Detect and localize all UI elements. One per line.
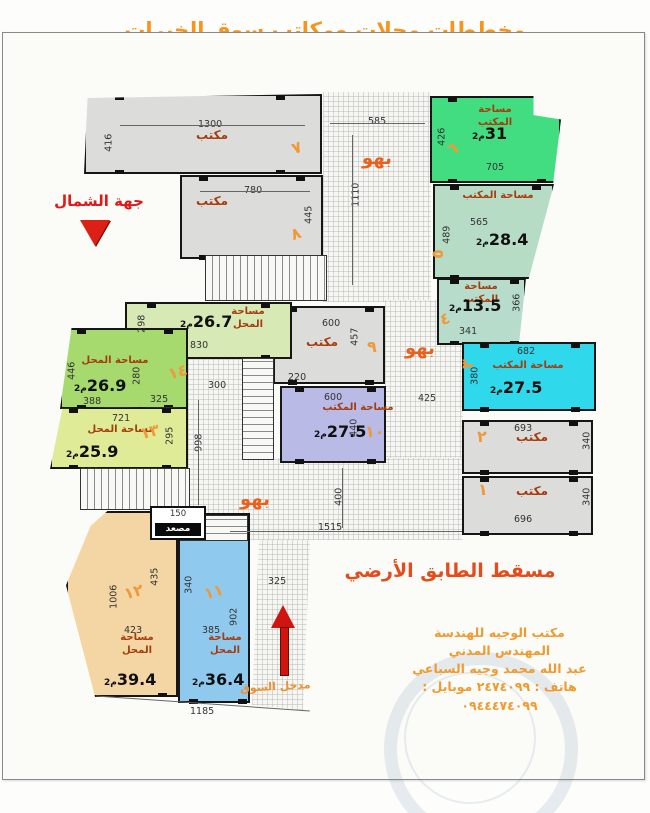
elevator-dim: 150 <box>152 509 204 519</box>
room-area-value: 28.4م2 <box>476 232 528 248</box>
dim-line <box>120 125 305 126</box>
dimension-label: 721 <box>112 414 130 424</box>
dim-line <box>198 400 199 505</box>
room-number: ٥ <box>430 249 446 259</box>
room-label: مساحة المكتب <box>462 190 534 203</box>
dimension-label: 295 <box>165 427 175 445</box>
dimension-label: 489 <box>442 226 452 244</box>
dimension-label: 280 <box>132 367 142 385</box>
dimension-label: 445 <box>304 206 314 224</box>
wall-column <box>365 380 374 385</box>
room-label: مكتب <box>196 194 228 209</box>
wall-column <box>276 95 285 100</box>
area-number: 13.5 <box>462 296 501 315</box>
dimension-label: 425 <box>418 394 436 404</box>
wall-column <box>77 329 86 334</box>
wall-column <box>199 176 208 181</box>
room-number: ٩ <box>367 339 377 355</box>
dimension-label: 385 <box>202 626 220 636</box>
wall-column <box>147 303 156 308</box>
office-info-line: عبد الله محمد وجيه السباعي <box>382 660 617 678</box>
area-unit: م2 <box>314 430 327 440</box>
dimension-label: 388 <box>83 397 101 407</box>
area-number: 26.9 <box>87 376 126 395</box>
dimension-label: 340 <box>582 432 592 450</box>
entrance-arrow-icon <box>271 605 295 628</box>
room-label: مكتب <box>306 335 338 350</box>
entrance-arrow-shaft <box>280 627 289 676</box>
dimension-label: 830 <box>190 341 208 351</box>
dimension-label: 585 <box>368 117 386 127</box>
dim-line <box>352 135 353 285</box>
staircase-bottom <box>80 468 190 510</box>
wall-column <box>367 459 376 464</box>
room-number: ٢ <box>477 429 487 445</box>
room-label: مساحة المكتب <box>488 360 568 373</box>
area-unit: م2 <box>104 678 117 688</box>
room-label: مكتب <box>196 128 228 143</box>
hall-label: بهو <box>362 148 392 169</box>
wall-column <box>480 470 489 475</box>
wall-column <box>367 387 376 392</box>
office-info-line: هاتف : ٢٤٧٤٠٩٩ موبايل : ٠٩٤٤٤٧٤٠٩٩ <box>382 678 617 714</box>
area-number: 31 <box>485 124 507 143</box>
area-number: 26.7 <box>193 312 232 331</box>
wall-column <box>162 408 171 413</box>
room-number: ١٠ <box>365 424 385 440</box>
wall-column <box>164 329 173 334</box>
dim-line <box>200 191 310 192</box>
dimension-label: 440 <box>349 419 359 437</box>
dimension-label: 682 <box>517 347 535 357</box>
area-number: 36.4 <box>205 670 244 689</box>
dimension-label: 565 <box>470 218 488 228</box>
room-area-value: 26.9م2 <box>74 378 126 394</box>
wall-column <box>480 407 489 412</box>
wall-column <box>571 343 580 348</box>
area-unit: م2 <box>66 450 79 460</box>
north-label: جهة الشمال <box>44 192 154 210</box>
area-unit: م2 <box>490 386 503 396</box>
staircase-middle <box>242 358 274 460</box>
wall-column <box>569 477 578 482</box>
wall-column <box>480 531 489 536</box>
wall-column <box>569 470 578 475</box>
dimension-label: 325 <box>268 577 286 587</box>
dimension-label: 705 <box>486 163 504 173</box>
dimension-label: 423 <box>124 626 142 636</box>
staircase-top <box>205 255 327 301</box>
room-area-value: 36.4م2 <box>192 672 244 688</box>
dimension-label: 693 <box>514 424 532 434</box>
elevator: 150 مصعد <box>150 506 206 540</box>
dimension-label: 340 <box>582 488 592 506</box>
room-area-value: 39.4م2 <box>104 672 156 688</box>
dimension-label: 902 <box>229 608 239 626</box>
dimension-label: 600 <box>324 393 342 403</box>
dimension-label: 380 <box>470 367 480 385</box>
area-number: 25.9 <box>79 442 118 461</box>
wall-column <box>448 97 457 102</box>
dimension-label: 426 <box>437 128 447 146</box>
area-unit: م2 <box>449 304 462 314</box>
room-area-value: 13.5م2 <box>449 298 501 314</box>
area-number: 28.4 <box>489 230 528 249</box>
area-number: 39.4 <box>117 670 156 689</box>
dimension-label: 220 <box>288 373 306 383</box>
dimension-label: 341 <box>459 327 477 337</box>
dimension-label: 446 <box>67 362 77 380</box>
dimension-label: 600 <box>322 319 340 329</box>
dimension-label: 325 <box>150 395 168 405</box>
area-unit: م2 <box>74 384 87 394</box>
wall-column <box>480 421 489 426</box>
wall-column <box>571 407 580 412</box>
dimension-label: 416 <box>104 134 114 152</box>
elevator-label: مصعد <box>155 523 201 536</box>
room-area-value: 27.5م2 <box>490 380 542 396</box>
office-info-line: مكتب الوجيه للهندسة <box>382 624 617 642</box>
room-label: مساحة المحل <box>76 355 154 368</box>
area-unit: م2 <box>472 132 485 142</box>
dimension-label: 340 <box>184 576 194 594</box>
dimension-label: 298 <box>137 315 147 333</box>
hall-label: بهو <box>405 338 435 359</box>
dimension-label: 366 <box>512 294 522 312</box>
area-number: 27.5 <box>503 378 542 397</box>
dimension-label: 1185 <box>190 707 214 717</box>
dimension-label: 300 <box>208 381 226 391</box>
area-unit: م2 <box>192 678 205 688</box>
dimension-label: 435 <box>150 568 160 586</box>
room-area-value: 25.9م2 <box>66 444 118 460</box>
hall-label: بهو <box>240 489 270 510</box>
floor-plan-canvas: مخططات محلات ومكاتب سوق الخيرات بهوبهوبه… <box>0 0 650 813</box>
wall-column <box>295 459 304 464</box>
wall-column <box>295 387 304 392</box>
dimension-label: 998 <box>194 434 204 452</box>
area-number: 27.5 <box>327 422 366 441</box>
floor-title: مسقط الطابق الأرضي <box>330 560 570 582</box>
wall-column <box>69 408 78 413</box>
wall-column <box>450 185 459 190</box>
room-area-value: 26.7م2 <box>180 314 232 330</box>
dim-line <box>342 468 343 528</box>
wall-column <box>480 343 489 348</box>
wall-column <box>569 531 578 536</box>
area-unit: م2 <box>476 238 489 248</box>
wall-column <box>296 176 305 181</box>
wall-column <box>365 307 374 312</box>
dim-line <box>230 531 462 532</box>
dimension-label: 457 <box>350 328 360 346</box>
room-label: مكتب <box>516 484 548 499</box>
room-area-value: 31م2 <box>472 126 507 142</box>
wall-column <box>569 421 578 426</box>
office-info-line: المهندس المدني <box>382 642 617 660</box>
office-info-box: مكتب الوجيه للهندسة المهندس المدني عبد ا… <box>382 624 617 715</box>
dimension-label: 696 <box>514 515 532 525</box>
north-arrow-icon <box>80 220 110 246</box>
dimension-label: 1006 <box>109 585 119 609</box>
dim-line <box>330 123 425 124</box>
wall-column <box>238 699 247 704</box>
room-label: مساحة المكتب <box>322 402 394 415</box>
room-number: ١ <box>478 482 488 498</box>
